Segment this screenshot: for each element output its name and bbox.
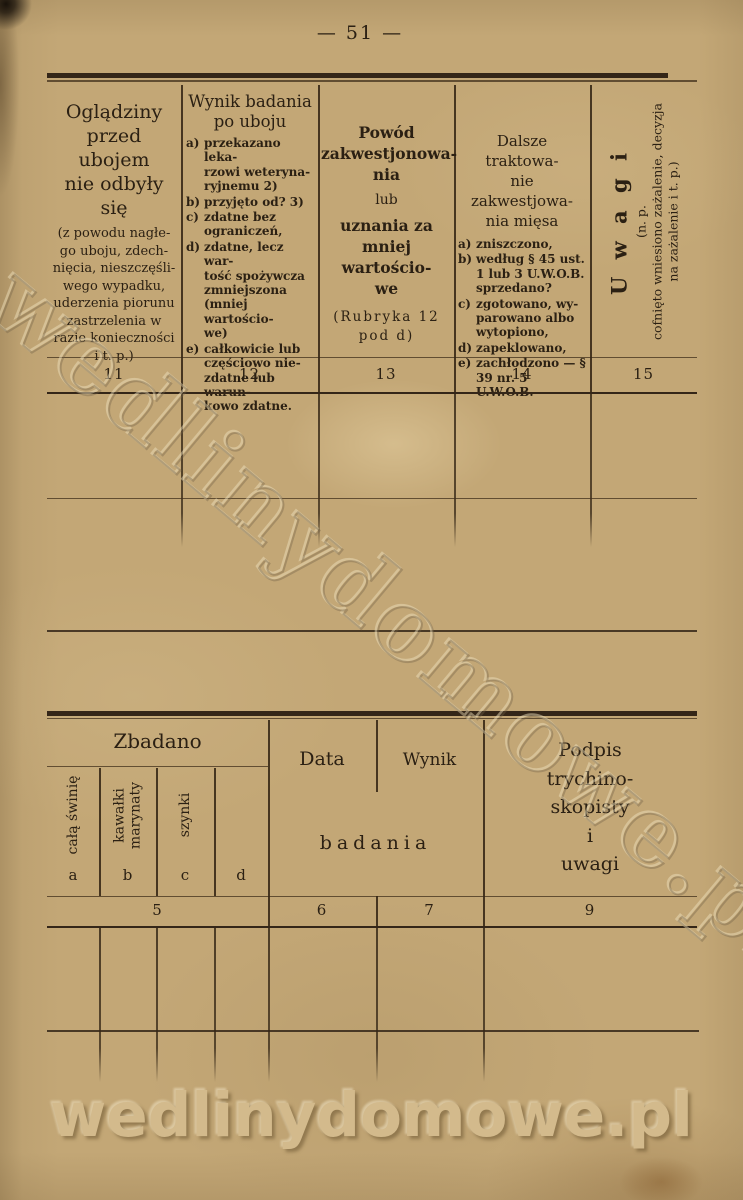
table1-body-divider	[454, 394, 456, 547]
subcolumn-a-letter: a	[47, 866, 99, 884]
table1-header-divider	[318, 85, 320, 357]
table1-col11-number: 11	[47, 365, 181, 383]
table2-body-divider	[376, 928, 378, 1082]
table2-body-divider	[483, 928, 485, 1082]
table2-number-row-rule	[47, 896, 697, 897]
col14-item: d)zapeklowano,	[458, 341, 586, 355]
subcolumn-a-label-box: całą świnię	[47, 771, 99, 859]
table1-body-divider	[318, 394, 320, 547]
result-column-label: Wynik	[376, 750, 483, 770]
col14-item: b)według § 45 ust. 1 lub 3 U.W.O.B. sprz…	[458, 252, 586, 295]
table1-header-bottom-rule	[47, 392, 697, 394]
table2-body-divider	[99, 928, 101, 1082]
table1-col15-header: U w a g i (n. p. cofnięto wniesiono zaża…	[590, 85, 697, 357]
table1-body-divider	[590, 394, 592, 547]
table2-body-divider	[214, 928, 216, 1082]
col13-reason-bottom: uznania za mniej wartościo- we	[321, 215, 452, 299]
col11-note: (z powodu nagłe- go uboju, zdech- nięcia…	[49, 225, 179, 365]
table2-result-number: 7	[376, 901, 483, 919]
table1-col15-number: 15	[590, 365, 697, 383]
table1-bottom-rule	[47, 630, 697, 632]
col14-item: c)zgotowano, wy- parowano albo wytopiono…	[458, 297, 586, 340]
table1-header-divider	[181, 85, 183, 357]
table1-row-divider	[47, 498, 697, 499]
table1-col14-header: Dalsze traktowa- nie zakwestjowa- nia mi…	[458, 131, 586, 400]
subcolumn-c-letter: c	[156, 866, 214, 884]
subcolumn-b-label-box: kawałki marynaty	[99, 771, 156, 859]
col13-connector: lub	[321, 192, 452, 208]
scanned-document-page: — 51 — Oglądziny przed ubojem nie odbyły…	[0, 0, 743, 1200]
page-number: — 51 —	[280, 22, 440, 44]
col13-reason-top: Powód zakwestjonowa- nia	[321, 122, 452, 185]
col12-title: Wynik badania po uboju	[186, 92, 314, 132]
subcolumn-b-label: kawałki marynaty	[99, 771, 156, 859]
date-column-label: Data	[268, 748, 376, 770]
table2-date-number: 6	[268, 901, 376, 919]
table2-body-divider	[268, 928, 270, 1082]
watermark-bottom: wedlinydomowe.pl	[0, 1080, 743, 1151]
table2-top-rule-thick	[47, 711, 697, 716]
col14-title: Dalsze traktowa- nie zakwestjowa- nia mi…	[458, 131, 586, 231]
subcolumn-a-label: całą świnię	[47, 771, 99, 859]
col15-note: (n. p. cofnięto wniesiono zażalenie, dec…	[633, 85, 681, 357]
table2-body-divider	[156, 928, 158, 1082]
col15-title: U w a g i	[606, 85, 632, 357]
table1-top-rule-thin	[47, 80, 697, 82]
examined-group-label: Zbadano	[47, 729, 268, 753]
table2-row-divider	[47, 1030, 699, 1032]
table2-header-divider	[268, 720, 270, 896]
col11-title: Oglądziny przed ubojem nie odbyły się	[49, 100, 179, 220]
col12-item: c)zdatne bez ograniczeń,	[186, 210, 314, 239]
table1-body-divider	[181, 394, 183, 547]
subcolumn-c-label: szynki	[156, 771, 214, 859]
col12-item: b)przyjęto od? 3)	[186, 195, 314, 209]
table1-col14-number: 14	[454, 365, 590, 383]
subcolumn-b-letter: b	[99, 866, 156, 884]
subcolumn-c-label-box: szynki	[156, 771, 214, 859]
table2-top-rule-thin	[47, 718, 697, 719]
table2-group-number: 5	[47, 901, 268, 919]
table1-header-divider	[454, 85, 456, 357]
col12-item: a)przekazano leka- rzowi weteryna- ryjne…	[186, 136, 314, 194]
signature-column-label: Podpis trychino- skopisty i uwagi	[483, 736, 697, 879]
subcolumn-d-letter: d	[214, 866, 268, 884]
table2-header-bottom-rule	[47, 926, 697, 928]
table2-signature-number: 9	[483, 901, 697, 919]
table1-col12-number: 12	[181, 365, 318, 383]
table1-number-row-rule	[47, 357, 697, 358]
examination-span-label: badania	[268, 832, 483, 854]
col14-item: a)zniszczono,	[458, 237, 586, 251]
col13-note: (Rubryka 12 pod d)	[321, 308, 452, 346]
table1-col13-number: 13	[318, 365, 454, 383]
table1-col13-header: Powód zakwestjonowa- nia lub uznania za …	[321, 122, 452, 346]
table1-top-rule-thick	[47, 73, 668, 78]
table1-col11-header: Oglądziny przed ubojem nie odbyły się (z…	[49, 100, 179, 365]
col12-item: d)zdatne, lecz war- tość spożywcza zmnie…	[186, 240, 314, 341]
